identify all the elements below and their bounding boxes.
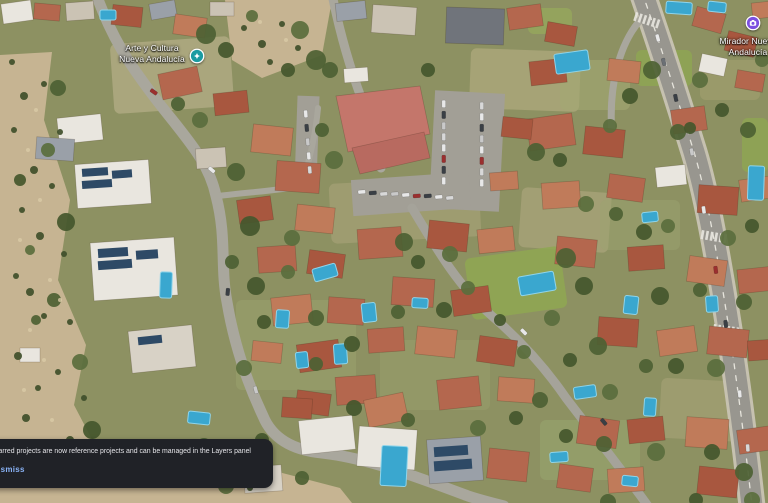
poi-label-arte-y-cultura[interactable]: Arte y Cultura Nueva Andalucía xyxy=(107,43,197,65)
poi-label-line: Mirador Nueva xyxy=(713,36,768,47)
google-earth-canvas[interactable]: Arte y Cultura Nueva Andalucía Mirador N… xyxy=(0,0,768,503)
satellite-imagery xyxy=(0,0,768,503)
poi-label-line: Nueva Andalucía xyxy=(107,54,197,65)
toast-message: Starred projects are now reference proje… xyxy=(0,447,261,456)
poi-label-line: Andalucía xyxy=(713,47,768,58)
poi-label-mirador[interactable]: Mirador Nueva Andalucía xyxy=(713,36,768,58)
dismiss-button[interactable]: Dismiss xyxy=(0,465,25,474)
poi-label-line: Arte y Cultura xyxy=(107,43,197,54)
notification-toast: Starred projects are now reference proje… xyxy=(0,439,273,488)
viewpoint-camera-icon[interactable] xyxy=(745,15,761,31)
